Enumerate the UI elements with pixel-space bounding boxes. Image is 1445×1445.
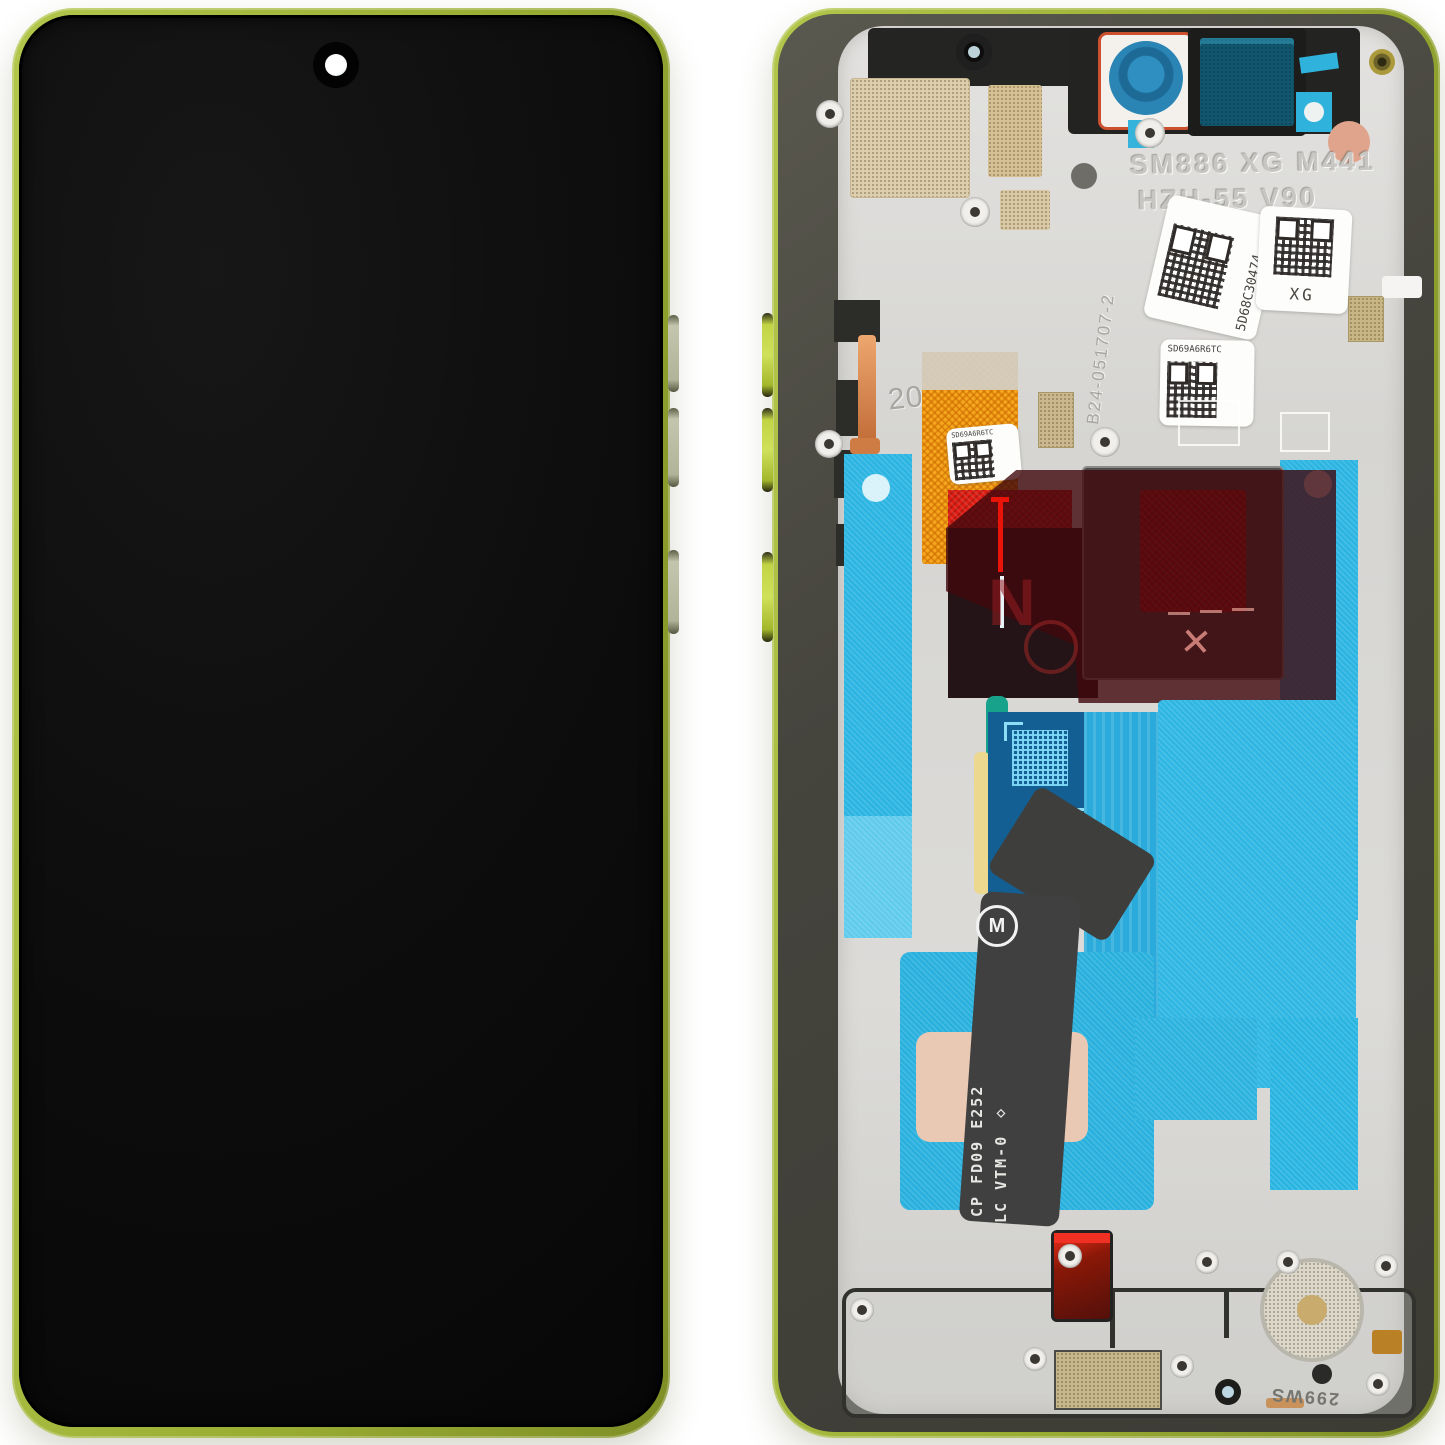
screw-post-icon xyxy=(816,100,844,128)
gasket-divider xyxy=(1224,1288,1229,1338)
copper-flex-hook xyxy=(858,335,876,448)
qr-code-icon xyxy=(952,439,995,480)
sensor-lens xyxy=(968,46,980,58)
adhesive-square xyxy=(1296,92,1332,132)
dark-grommet xyxy=(1071,163,1097,189)
etched-outline-square xyxy=(1178,400,1240,446)
red-position-marker xyxy=(998,500,1003,572)
screw-post-icon xyxy=(1374,1254,1398,1278)
screw-post-icon xyxy=(1058,1244,1082,1268)
qr-code-icon xyxy=(1273,216,1334,277)
flex-stiffener-cap xyxy=(922,352,1018,390)
power-button-back xyxy=(762,552,773,642)
etched-outline-square xyxy=(1280,412,1330,452)
volume-down-button-back xyxy=(762,408,773,492)
front-view-phone xyxy=(12,8,670,1438)
screw-post-icon xyxy=(1195,1250,1219,1274)
mic-hole-icon xyxy=(1312,1364,1332,1384)
film-ring-mark xyxy=(1024,620,1078,674)
film-dash xyxy=(1200,610,1222,613)
flex-label-code: SD69A6R6TC xyxy=(951,428,994,440)
vibration-motor-top xyxy=(1054,1233,1110,1243)
flex-print-line1: CP FD09 E252 xyxy=(968,1042,986,1217)
qr-label-2-code: XG xyxy=(1256,283,1349,307)
speaker-mesh-strip xyxy=(1348,296,1384,342)
datamatrix-bracket xyxy=(1004,722,1023,741)
back-view-phone: SM886 XG M441 HZH-55 V90 5D68C30474 XG S… xyxy=(772,8,1440,1438)
antenna-mesh-pad-small xyxy=(1000,190,1050,230)
front-camera-lens xyxy=(1109,41,1183,115)
adhesive-strip-left xyxy=(844,454,912,816)
volume-up-button xyxy=(668,315,679,392)
film-dash xyxy=(1168,612,1190,615)
sensor-port xyxy=(1215,1379,1241,1405)
antenna-mesh-pad-large xyxy=(850,78,970,198)
red-marker-serif xyxy=(991,497,1009,502)
top-sensor-hole-icon xyxy=(956,34,992,70)
film-n-mark: N xyxy=(988,564,1036,640)
product-photo: SM886 XG M441 HZH-55 V90 5D68C30474 XG S… xyxy=(0,0,1445,1445)
adhesive-strip-left-light xyxy=(844,816,912,938)
speaker-mesh-strip xyxy=(1038,392,1074,448)
copper-flex-foot xyxy=(850,438,880,454)
volume-up-button-back xyxy=(762,313,773,397)
speaker-round-mesh xyxy=(1260,1258,1364,1362)
adhesive-patch xyxy=(1270,1018,1358,1190)
front-camera-lens-reflection xyxy=(325,54,347,76)
qr-label-3-code: SD69A6R6TC xyxy=(1167,344,1221,355)
sensor-port-lens xyxy=(1222,1386,1234,1398)
gold-screw-icon xyxy=(1369,49,1395,75)
speaker-center-dot xyxy=(1297,1295,1327,1325)
flex-print-line2: LC VTM-0 ◇ xyxy=(992,1048,1010,1223)
volume-down-button xyxy=(668,408,679,487)
qr-label-2: XG xyxy=(1255,206,1352,315)
adhesive-hole xyxy=(1304,102,1324,122)
screw-post-icon xyxy=(1276,1250,1300,1274)
qr-code-icon xyxy=(1157,223,1234,309)
front-camera-module xyxy=(1098,32,1194,130)
screw-post-icon xyxy=(1135,118,1165,148)
vibration-motor xyxy=(1051,1230,1113,1322)
screw-post-icon xyxy=(1090,427,1120,457)
edge-label xyxy=(1382,276,1422,298)
film-x-mark: ✕ xyxy=(1178,619,1213,666)
earpiece-recess xyxy=(1188,28,1306,136)
adhesive-hole xyxy=(862,474,890,502)
power-button xyxy=(668,550,679,634)
etched-model-code: SM886 XG M441 xyxy=(1130,146,1377,181)
earpiece-mesh xyxy=(1200,38,1294,126)
contact-pads xyxy=(1372,1330,1402,1354)
front-screen xyxy=(19,15,663,1427)
film-dash xyxy=(1232,608,1254,611)
antenna-mesh-pad xyxy=(988,85,1042,177)
screw-post-icon xyxy=(1170,1354,1194,1378)
screw-post-icon xyxy=(960,197,990,227)
loudspeaker-mesh xyxy=(1054,1350,1162,1410)
screw-post-icon xyxy=(815,430,843,458)
screw-post-icon xyxy=(850,1298,874,1322)
adhesive-patch xyxy=(1135,1018,1257,1120)
screw-post-icon xyxy=(1366,1372,1390,1396)
screw-post-icon xyxy=(1023,1347,1047,1371)
motorola-logo-icon: M xyxy=(976,905,1018,947)
